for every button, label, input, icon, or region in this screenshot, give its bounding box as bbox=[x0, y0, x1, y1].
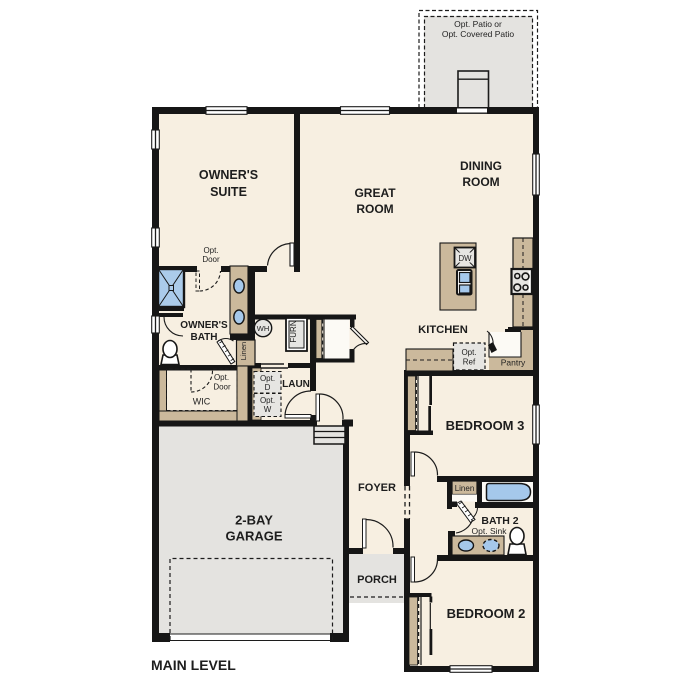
svg-text:Opt.: Opt. bbox=[260, 396, 275, 405]
svg-text:OWNER'S: OWNER'S bbox=[180, 320, 228, 331]
svg-text:PORCH: PORCH bbox=[357, 574, 397, 586]
svg-text:Door: Door bbox=[202, 255, 220, 264]
svg-text:BATH: BATH bbox=[190, 332, 217, 343]
svg-text:DINING: DINING bbox=[460, 159, 502, 173]
svg-text:FOYER: FOYER bbox=[358, 482, 396, 494]
svg-text:W: W bbox=[264, 405, 272, 414]
svg-text:Pantry: Pantry bbox=[501, 358, 526, 368]
svg-text:WIC: WIC bbox=[193, 397, 211, 407]
svg-text:2-BAY: 2-BAY bbox=[235, 513, 273, 528]
svg-text:D: D bbox=[265, 383, 271, 392]
svg-text:KITCHEN: KITCHEN bbox=[418, 324, 468, 336]
svg-text:BEDROOM 3: BEDROOM 3 bbox=[446, 418, 525, 433]
svg-text:Opt.: Opt. bbox=[214, 373, 229, 382]
svg-text:ROOM: ROOM bbox=[462, 175, 499, 189]
svg-text:Door: Door bbox=[213, 383, 231, 392]
svg-text:Opt. Patio or: Opt. Patio or bbox=[454, 19, 502, 29]
svg-text:WH: WH bbox=[257, 324, 270, 333]
svg-text:Linen: Linen bbox=[455, 484, 475, 493]
svg-text:GARAGE: GARAGE bbox=[225, 529, 282, 544]
svg-text:Opt.: Opt. bbox=[260, 374, 275, 383]
svg-text:DW: DW bbox=[459, 254, 473, 263]
svg-text:LAUN: LAUN bbox=[282, 379, 310, 390]
svg-text:SUITE: SUITE bbox=[210, 185, 247, 199]
svg-text:Opt.: Opt. bbox=[461, 348, 476, 357]
svg-text:Opt.: Opt. bbox=[203, 246, 218, 255]
svg-text:GREAT: GREAT bbox=[354, 186, 396, 200]
svg-text:FURN: FURN bbox=[289, 320, 298, 342]
svg-text:ROOM: ROOM bbox=[356, 202, 393, 216]
svg-text:Opt. Sink: Opt. Sink bbox=[472, 526, 508, 536]
svg-text:MAIN LEVEL: MAIN LEVEL bbox=[151, 657, 236, 673]
svg-text:Ref: Ref bbox=[463, 358, 476, 367]
svg-text:Linen: Linen bbox=[239, 342, 248, 360]
svg-text:OWNER'S: OWNER'S bbox=[199, 168, 258, 182]
svg-text:BEDROOM 2: BEDROOM 2 bbox=[447, 606, 526, 621]
svg-text:Opt. Covered Patio: Opt. Covered Patio bbox=[442, 29, 515, 39]
